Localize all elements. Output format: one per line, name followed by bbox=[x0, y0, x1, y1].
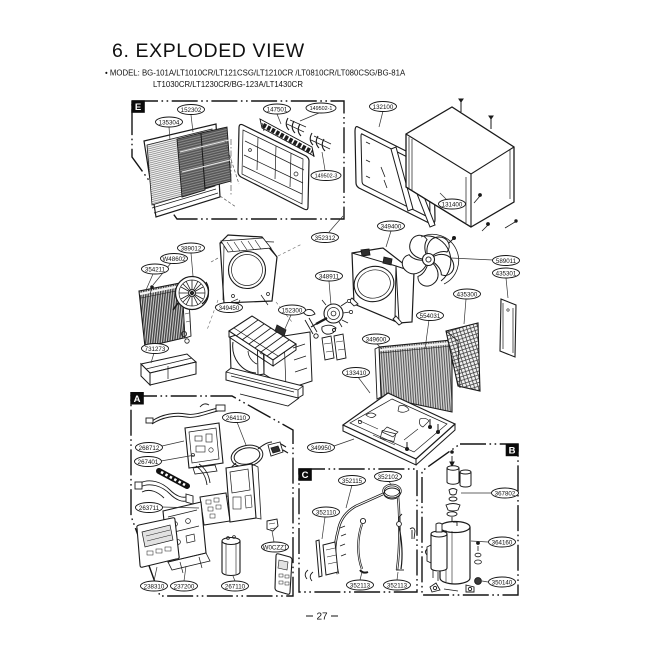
svg-text:589011: 589011 bbox=[496, 258, 517, 265]
svg-text:267110: 267110 bbox=[225, 583, 246, 590]
svg-text:149502-1: 149502-1 bbox=[310, 106, 333, 112]
svg-text:E: E bbox=[135, 102, 141, 113]
svg-text:348911: 348911 bbox=[319, 273, 340, 280]
svg-text:147501: 147501 bbox=[267, 106, 288, 113]
svg-text:267401: 267401 bbox=[138, 459, 159, 466]
svg-text:W48602: W48602 bbox=[162, 256, 186, 263]
svg-text:B: B bbox=[509, 446, 516, 457]
svg-text:A: A bbox=[134, 394, 141, 405]
svg-text:350140: 350140 bbox=[492, 579, 513, 586]
svg-text:349400: 349400 bbox=[381, 223, 402, 230]
svg-text:6. EXPLODED VIEW: 6. EXPLODED VIEW bbox=[112, 40, 305, 62]
svg-text:238310: 238310 bbox=[144, 583, 165, 590]
svg-text:C: C bbox=[302, 470, 309, 481]
svg-text:237200: 237200 bbox=[174, 583, 195, 590]
svg-text:152300: 152300 bbox=[282, 307, 303, 314]
svg-text:352113: 352113 bbox=[350, 582, 371, 589]
svg-text:354211: 354211 bbox=[145, 266, 166, 273]
svg-text:152302: 152302 bbox=[181, 107, 202, 114]
svg-text:435301: 435301 bbox=[496, 270, 517, 277]
svg-text:135304: 135304 bbox=[159, 119, 180, 126]
svg-text:W0CZZ1: W0CZZ1 bbox=[263, 544, 288, 551]
svg-text:731273: 731273 bbox=[145, 346, 166, 353]
svg-text:352113: 352113 bbox=[387, 582, 408, 589]
svg-text:• MODEL: BG-101A/LT1010CR/LT12: • MODEL: BG-101A/LT1010CR/LT121CSG/LT121… bbox=[105, 69, 406, 78]
svg-text:367802: 367802 bbox=[495, 490, 516, 497]
svg-text:349950: 349950 bbox=[311, 445, 332, 452]
svg-text:389012: 389012 bbox=[181, 245, 202, 252]
svg-text:264110: 264110 bbox=[226, 415, 247, 422]
svg-text:131400: 131400 bbox=[442, 201, 463, 208]
svg-text:554031: 554031 bbox=[420, 313, 441, 320]
svg-text:349600: 349600 bbox=[366, 336, 387, 343]
svg-text:132100: 132100 bbox=[373, 104, 394, 111]
svg-text:349450: 349450 bbox=[219, 305, 240, 312]
svg-text:364160: 364160 bbox=[492, 539, 513, 546]
svg-text:263711: 263711 bbox=[139, 505, 160, 512]
svg-text:133410: 133410 bbox=[346, 370, 367, 377]
svg-text:27: 27 bbox=[316, 612, 328, 623]
svg-text:352110: 352110 bbox=[316, 509, 337, 516]
svg-text:352102: 352102 bbox=[378, 474, 399, 481]
svg-text:268712: 268712 bbox=[139, 445, 160, 452]
svg-text:149502-3: 149502-3 bbox=[315, 174, 338, 180]
svg-text:LT1030CR/LT1230CR/BG-123A/LT14: LT1030CR/LT1230CR/BG-123A/LT1430CR bbox=[153, 80, 303, 89]
svg-text:352312: 352312 bbox=[315, 235, 336, 242]
svg-text:435300: 435300 bbox=[457, 291, 478, 298]
svg-text:352115: 352115 bbox=[342, 478, 363, 485]
